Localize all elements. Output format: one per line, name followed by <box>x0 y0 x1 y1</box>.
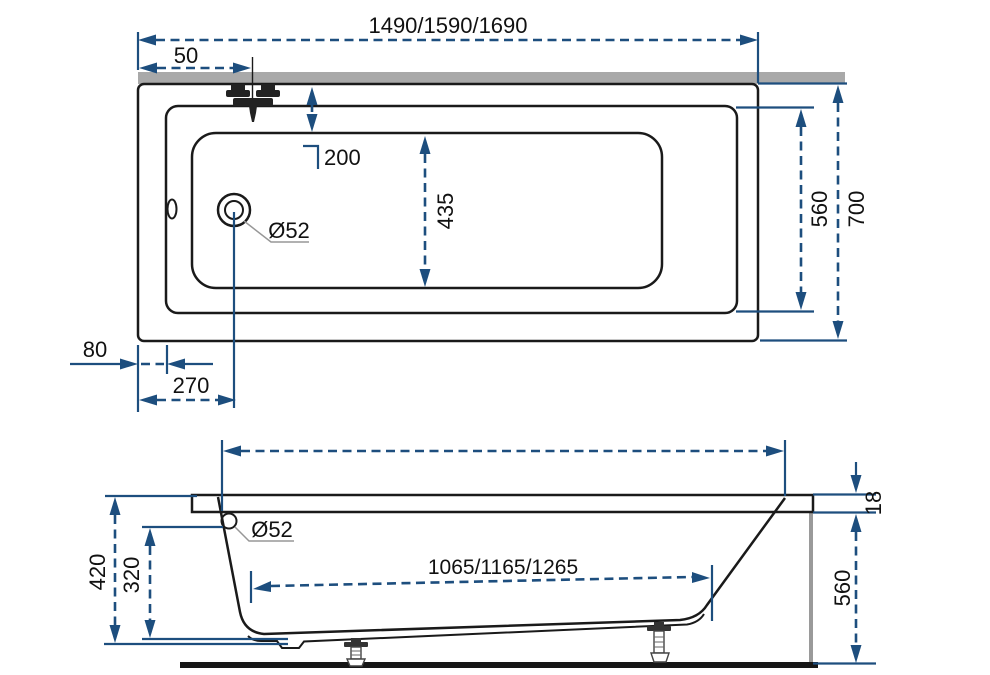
tub-basin-floor <box>192 133 662 288</box>
overflow-diameter-label: Ø52 <box>251 517 293 542</box>
side-view: Ø52 <box>85 440 886 668</box>
overall-length-label: 1490/1590/1690 <box>368 13 527 38</box>
bottom-length-label: 1065/1165/1265 <box>428 556 578 579</box>
bathtub-technical-drawing: Ø52 1490/1590/1690 50 <box>0 0 990 675</box>
dim-basin-width: 435 <box>420 136 459 287</box>
overall-height-label: 420 <box>85 554 110 591</box>
dim-overflow-height: 320 <box>119 527 288 639</box>
dim-faucet-offset: 50 <box>139 43 251 74</box>
dim-drain-offset: 270 <box>139 373 236 406</box>
skirt-height-label: 560 <box>830 570 855 607</box>
dim-edge-to-basin: 200 <box>303 87 361 170</box>
dim-skirt-height: 560 <box>813 514 876 664</box>
overflow-hole <box>168 200 177 219</box>
basin-width-label: 435 <box>433 193 458 230</box>
dim-bottom-length: 1065/1165/1265 <box>251 556 712 621</box>
faucet-offset-label: 50 <box>174 43 198 68</box>
overflow-height-label: 320 <box>119 557 144 594</box>
floor-line <box>180 662 818 668</box>
foot-right <box>647 622 671 662</box>
dim-top-reference <box>222 440 785 511</box>
rim-width-label: 80 <box>83 337 107 362</box>
edge-to-basin-label: 200 <box>324 145 361 170</box>
drawing-canvas: Ø52 1490/1590/1690 50 <box>0 0 990 675</box>
rim-thickness-label: 18 <box>861 491 886 515</box>
wall-band <box>138 72 845 84</box>
drain-diameter-label: Ø52 <box>268 218 310 243</box>
rim-band <box>192 495 813 512</box>
foot-left <box>344 638 368 666</box>
dim-inner-width: 560 <box>736 108 832 312</box>
drain-offset-label: 270 <box>173 373 210 398</box>
dim-rim-thickness: 18 <box>813 462 886 515</box>
top-view: Ø52 1490/1590/1690 50 <box>70 13 869 412</box>
inner-width-label: 560 <box>807 191 832 228</box>
overall-width-label: 700 <box>844 191 869 228</box>
